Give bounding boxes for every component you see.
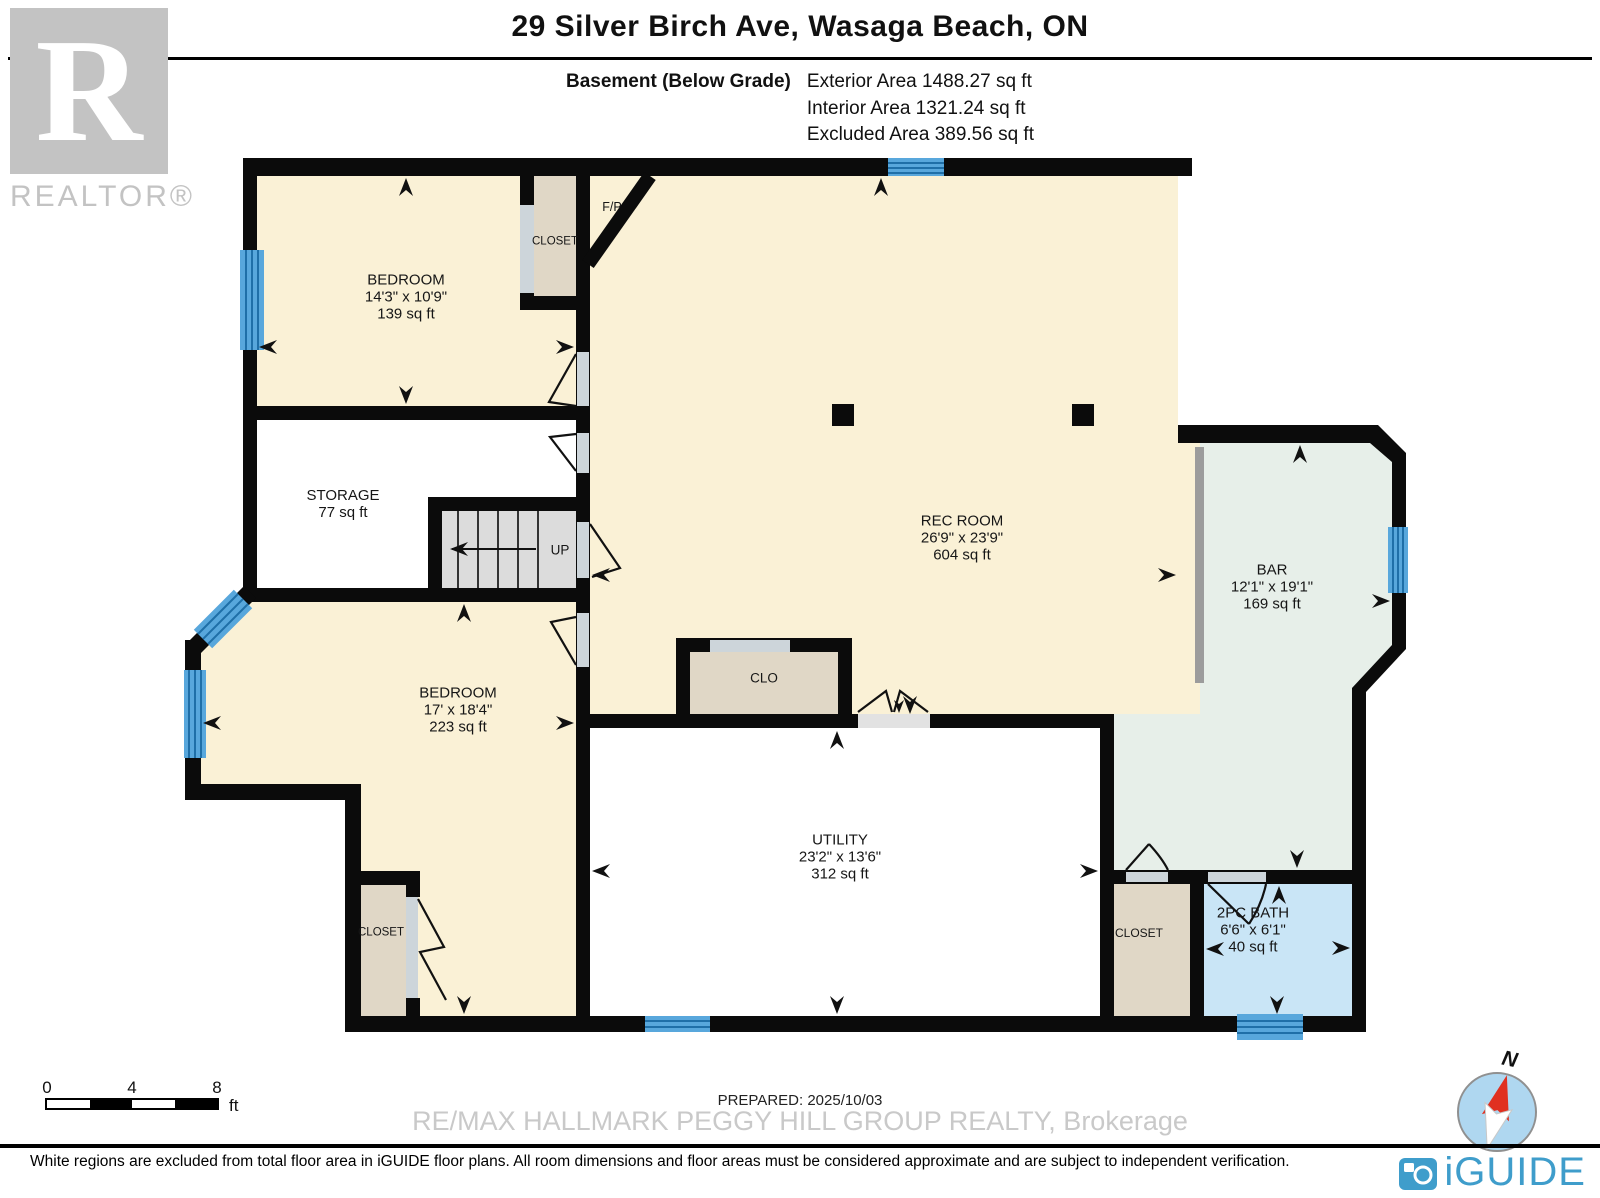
bar-counter: [1195, 447, 1204, 683]
window-utility: [645, 1016, 710, 1032]
prepared-date: PREPARED: 2025/10/03: [0, 1092, 1600, 1109]
bath-door-strip: [1208, 872, 1266, 882]
disclaimer-text: White regions are excluded from total fl…: [30, 1153, 1290, 1171]
window-rec-room: [888, 158, 944, 176]
utility-door-gap: [858, 714, 930, 728]
room-label-utility: UTILITY 23'2" x 13'6" 312 sq ft: [799, 831, 881, 882]
floor-plan-page: 29 Silver Birch Ave, Wasaga Beach, ON Ba…: [0, 0, 1600, 1198]
closet1-door-strip: [520, 205, 534, 293]
room-label-storage: STORAGE 77 sq ft: [306, 487, 379, 521]
door-stairs-strip: [577, 522, 589, 578]
room-label-bedroom-1: BEDROOM 14'3" x 10'9" 139 sq ft: [365, 271, 447, 322]
room-label-closet-3: CLOSET: [1115, 927, 1163, 941]
room-label-fireplace: F/P: [602, 200, 621, 214]
window-bar: [1388, 527, 1408, 593]
iguide-logo-icon: [1398, 1155, 1438, 1191]
window-bedroom2: [184, 670, 206, 758]
window-bath: [1237, 1014, 1303, 1040]
door-bedroom2-strip: [577, 613, 589, 667]
clo-opening-strip: [710, 640, 790, 652]
door-bedroom1-strip: [577, 352, 589, 406]
iguide-brand: iGUIDE: [1398, 1150, 1586, 1195]
closet2-bifold-strip: [406, 897, 418, 998]
room-label-bath: 2PC BATH 6'6" x 6'1" 40 sq ft: [1217, 904, 1289, 955]
door-storage-strip: [577, 433, 589, 473]
window-bedroom1: [240, 250, 264, 350]
closet2-fill: [361, 885, 406, 1016]
floor-plan-drawing: [0, 0, 1600, 1198]
room-label-clo: CLO: [750, 670, 778, 685]
room-label-closet-2: CLOSET: [358, 926, 404, 939]
stairs-up-label: UP: [551, 542, 570, 557]
column-post: [832, 404, 854, 426]
room-label-closet-1: CLOSET: [532, 235, 578, 248]
closet3-fill: [1114, 884, 1190, 1016]
room-label-rec-room: REC ROOM 26'9" x 23'9" 604 sq ft: [921, 512, 1004, 563]
room-label-bar: BAR 12'1" x 19'1" 169 sq ft: [1231, 561, 1313, 612]
closet3-door-strip: [1126, 872, 1168, 882]
footer-divider: [0, 1144, 1600, 1148]
room-label-bedroom-2: BEDROOM 17' x 18'4" 223 sq ft: [419, 684, 497, 735]
iguide-wordmark: iGUIDE: [1444, 1150, 1586, 1195]
column-post: [1072, 404, 1094, 426]
brokerage-watermark: RE/MAX HALLMARK PEGGY HILL GROUP REALTY,…: [0, 1106, 1600, 1137]
